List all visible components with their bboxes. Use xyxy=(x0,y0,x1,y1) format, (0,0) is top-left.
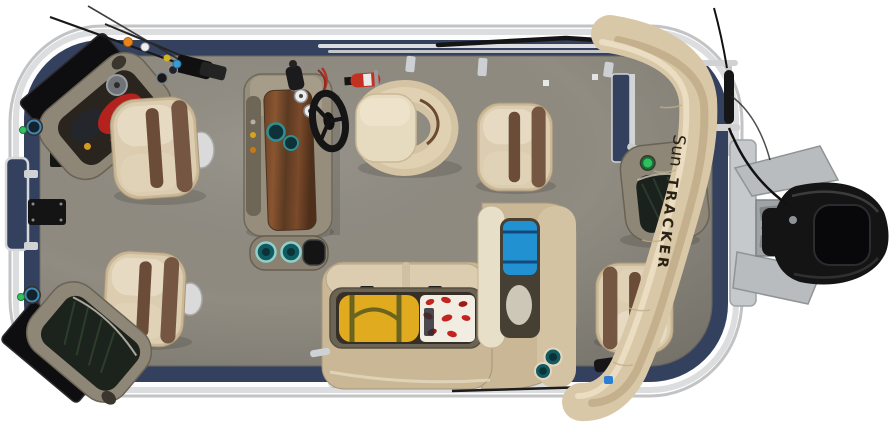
nav-light-green xyxy=(642,157,654,169)
side-tray xyxy=(246,96,261,216)
boat-scene: Sun TRACKER xyxy=(0,0,890,446)
fish-print-life-vest xyxy=(420,295,475,342)
gate-hinge xyxy=(24,170,38,178)
nav-light-green xyxy=(18,294,25,301)
bobber-white xyxy=(141,43,149,51)
mid-fishing-chair xyxy=(477,103,553,191)
trolling-pedal-plate xyxy=(28,199,66,225)
captain-chair xyxy=(356,94,444,162)
gauge-depth xyxy=(268,124,285,141)
vest-strap xyxy=(424,308,434,336)
bobber-blue xyxy=(173,60,181,68)
gauge-fuel xyxy=(284,136,298,150)
fishing-reel xyxy=(157,73,168,84)
lure-yellow xyxy=(164,55,171,62)
bimini-clamp-blue xyxy=(604,376,613,384)
gate-hinge xyxy=(24,242,38,250)
stored-item-white xyxy=(506,285,532,325)
bow-aft-gauge xyxy=(26,289,39,302)
nav-light-green xyxy=(20,127,27,134)
bow-gauge xyxy=(28,121,41,134)
cowl-top-panel xyxy=(814,205,870,265)
bobber-orange xyxy=(124,38,133,47)
storage-tray xyxy=(303,240,325,265)
pontoon-boat-photo: Sun TRACKER xyxy=(0,0,890,446)
stern-gate xyxy=(612,74,630,162)
bow-fishing-chair-top xyxy=(109,95,202,201)
blue-cooler-bag xyxy=(503,221,537,275)
brand-script-text: Sun xyxy=(665,133,689,168)
cowl-latch xyxy=(789,216,797,224)
